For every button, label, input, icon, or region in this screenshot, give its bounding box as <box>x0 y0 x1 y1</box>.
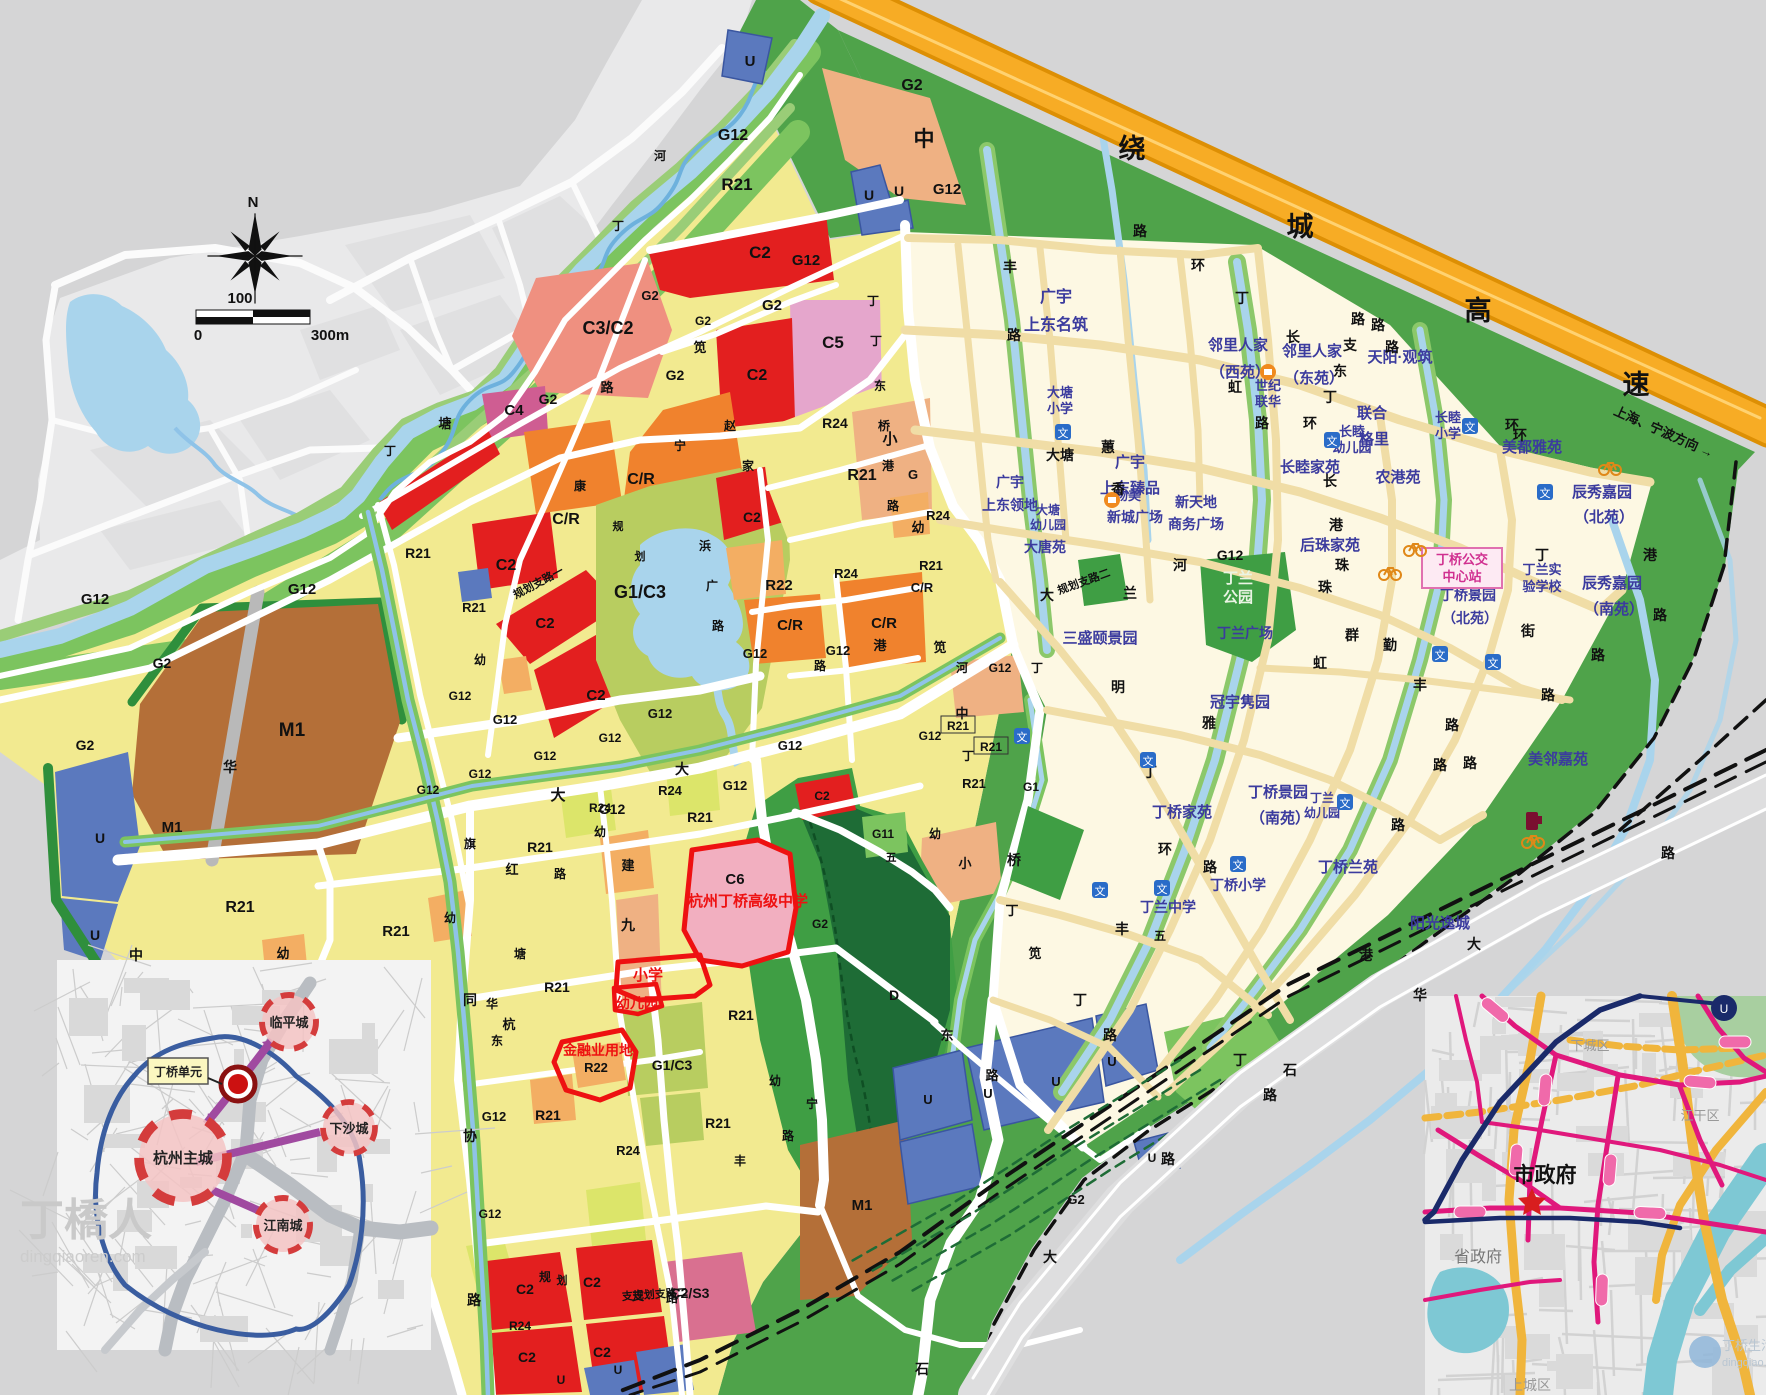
svg-text:港: 港 <box>1643 547 1658 563</box>
svg-text:验学校: 验学校 <box>1522 579 1562 594</box>
svg-text:大唐苑: 大唐苑 <box>1024 539 1066 555</box>
svg-text:小: 小 <box>958 856 971 871</box>
svg-text:金融业用地: 金融业用地 <box>562 1042 633 1058</box>
svg-text:港: 港 <box>1329 517 1344 533</box>
svg-text:G12: G12 <box>648 706 673 721</box>
svg-text:高: 高 <box>1465 295 1492 326</box>
svg-text:浜: 浜 <box>699 538 711 553</box>
svg-text:R24: R24 <box>926 508 951 523</box>
svg-text:建: 建 <box>621 858 634 873</box>
svg-text:丁: 丁 <box>1233 1052 1247 1068</box>
svg-text:丁桥景园: 丁桥景园 <box>1248 783 1308 801</box>
svg-text:文: 文 <box>1488 656 1499 670</box>
svg-text:G12: G12 <box>479 1207 502 1221</box>
svg-text:丁桥生活网: 丁桥生活网 <box>1722 1338 1766 1353</box>
svg-text:五: 五 <box>1154 929 1166 943</box>
svg-text:G12: G12 <box>718 127 748 144</box>
svg-text:G2: G2 <box>901 77 922 94</box>
svg-text:0: 0 <box>194 327 202 344</box>
svg-text:长睦: 长睦 <box>1435 410 1461 425</box>
svg-text:大: 大 <box>675 761 689 777</box>
svg-text:C/R: C/R <box>627 471 655 488</box>
svg-text:U: U <box>1148 1151 1157 1165</box>
svg-text:大: 大 <box>1040 587 1054 603</box>
svg-text:文: 文 <box>1157 882 1168 896</box>
svg-text:小学: 小学 <box>1435 426 1461 441</box>
svg-text:小: 小 <box>882 431 897 448</box>
svg-text:路: 路 <box>1661 845 1676 861</box>
svg-text:广宇: 广宇 <box>996 474 1024 490</box>
svg-text:C6: C6 <box>725 871 744 888</box>
svg-text:丰: 丰 <box>1413 677 1427 693</box>
svg-text:杭州丁桥高级中学: 杭州丁桥高级中学 <box>688 892 808 910</box>
svg-text:路: 路 <box>1103 1027 1118 1043</box>
svg-text:R21: R21 <box>980 740 1002 754</box>
svg-text:G2: G2 <box>695 314 711 328</box>
svg-text:明: 明 <box>1111 679 1125 695</box>
svg-text:G2: G2 <box>812 917 828 931</box>
svg-text:C2: C2 <box>583 1274 601 1290</box>
svg-text:G2: G2 <box>666 367 685 383</box>
svg-text:宁: 宁 <box>806 1096 818 1111</box>
svg-text:河: 河 <box>955 660 968 675</box>
svg-text:划: 划 <box>635 549 646 563</box>
svg-text:文: 文 <box>1465 420 1476 434</box>
svg-text:市政府: 市政府 <box>1514 1163 1577 1187</box>
svg-text:C3/C2: C3/C2 <box>582 318 633 338</box>
svg-text:路: 路 <box>1445 717 1460 733</box>
svg-text:C/R: C/R <box>552 511 580 528</box>
svg-text:家: 家 <box>742 458 755 473</box>
svg-text:大: 大 <box>1043 1249 1057 1265</box>
svg-text:中心站: 中心站 <box>1442 569 1481 584</box>
svg-text:G12: G12 <box>469 767 492 781</box>
svg-text:协: 协 <box>463 1128 477 1144</box>
svg-text:大: 大 <box>550 786 565 804</box>
svg-text:G12: G12 <box>723 778 748 793</box>
svg-text:路: 路 <box>1433 757 1448 773</box>
svg-text:D: D <box>889 987 899 1003</box>
svg-text:丁桥单元: 丁桥单元 <box>154 1064 202 1079</box>
svg-text:G12: G12 <box>482 1109 507 1124</box>
svg-text:C/R: C/R <box>871 615 897 632</box>
svg-text:冠宇隽园: 冠宇隽园 <box>1210 693 1270 711</box>
svg-text:联华: 联华 <box>1255 394 1281 409</box>
svg-text:路: 路 <box>1385 339 1400 355</box>
svg-text:幼: 幼 <box>594 824 606 839</box>
svg-text:丁: 丁 <box>867 294 879 308</box>
svg-text:U: U <box>1051 1074 1060 1089</box>
svg-text:R21: R21 <box>535 1107 561 1123</box>
svg-text:幼: 幼 <box>929 826 941 841</box>
svg-text:路: 路 <box>1391 817 1406 833</box>
svg-text:九: 九 <box>620 917 635 933</box>
svg-text:路: 路 <box>600 380 614 395</box>
svg-text:丁桥公交: 丁桥公交 <box>1436 552 1488 567</box>
svg-text:文: 文 <box>1058 426 1069 440</box>
svg-text:R24: R24 <box>509 1319 531 1333</box>
svg-text:丰: 丰 <box>1115 921 1129 937</box>
svg-text:丁: 丁 <box>612 219 624 233</box>
svg-text:C2: C2 <box>535 615 554 632</box>
svg-text:东: 东 <box>874 378 886 393</box>
svg-text:R22: R22 <box>584 1060 608 1075</box>
svg-text:R21: R21 <box>687 809 713 825</box>
svg-text:U: U <box>894 183 904 199</box>
svg-text:公园: 公园 <box>1223 589 1253 606</box>
svg-text:杭州主城: 杭州主城 <box>153 1149 213 1167</box>
svg-text:五: 五 <box>886 851 897 864</box>
svg-text:G12: G12 <box>743 646 768 661</box>
svg-text:东: 东 <box>491 1033 503 1048</box>
svg-text:幼: 幼 <box>474 652 486 667</box>
svg-text:文: 文 <box>1540 486 1551 500</box>
svg-text:城: 城 <box>1287 212 1314 242</box>
svg-text:R22: R22 <box>765 577 793 594</box>
svg-text:群: 群 <box>1344 627 1359 643</box>
svg-text:笕: 笕 <box>1028 946 1041 961</box>
svg-text:港: 港 <box>1359 947 1374 963</box>
svg-text:G2: G2 <box>641 288 658 303</box>
svg-text:丁兰实: 丁兰实 <box>1522 562 1561 577</box>
svg-text:G12: G12 <box>826 643 851 658</box>
svg-text:路: 路 <box>887 498 900 513</box>
svg-text:U: U <box>95 830 105 846</box>
svg-text:M1: M1 <box>279 720 306 741</box>
svg-text:勤: 勤 <box>1383 637 1397 653</box>
svg-text:港: 港 <box>882 458 895 473</box>
svg-text:大塘: 大塘 <box>1036 502 1060 517</box>
svg-text:C/R: C/R <box>911 580 934 595</box>
svg-text:C5: C5 <box>822 333 844 352</box>
svg-text:联合: 联合 <box>1357 404 1388 422</box>
svg-text:环: 环 <box>1191 257 1205 273</box>
svg-text:丁桥家苑: 丁桥家苑 <box>1152 803 1212 821</box>
svg-text:丁: 丁 <box>1031 661 1043 675</box>
svg-text:幼: 幼 <box>444 910 456 925</box>
svg-text:100: 100 <box>227 290 252 307</box>
svg-text:R21: R21 <box>947 719 969 733</box>
svg-text:G1/C3: G1/C3 <box>652 1057 693 1073</box>
svg-text:G11: G11 <box>872 827 894 841</box>
svg-text:丁桥小学: 丁桥小学 <box>1210 877 1266 893</box>
svg-text:丰: 丰 <box>734 1153 746 1168</box>
svg-text:丁: 丁 <box>1323 389 1337 405</box>
svg-text:C2: C2 <box>516 1281 534 1297</box>
svg-text:街: 街 <box>1520 623 1535 639</box>
svg-text:环: 环 <box>1303 415 1317 431</box>
svg-text:广宇: 广宇 <box>1040 287 1072 306</box>
svg-text:丁: 丁 <box>962 749 974 763</box>
svg-text:U: U <box>864 187 874 203</box>
svg-text:三盛颐景园: 三盛颐景园 <box>1062 629 1137 647</box>
svg-text:环: 环 <box>1158 841 1172 857</box>
svg-text:华: 华 <box>1413 987 1427 1003</box>
svg-text:路: 路 <box>782 1128 795 1143</box>
svg-text:G2: G2 <box>153 655 172 671</box>
svg-text:R21: R21 <box>962 776 986 791</box>
svg-text:幼: 幼 <box>276 946 289 961</box>
svg-text:文: 文 <box>1143 754 1154 768</box>
svg-text:丁: 丁 <box>1235 290 1249 306</box>
svg-text:C2: C2 <box>747 367 768 384</box>
svg-text:兰: 兰 <box>1123 585 1137 601</box>
svg-text:中: 中 <box>914 128 935 151</box>
svg-text:C2: C2 <box>593 1344 611 1360</box>
svg-text:路: 路 <box>712 618 725 633</box>
svg-text:小学: 小学 <box>633 966 663 984</box>
svg-text:R21: R21 <box>527 839 553 855</box>
svg-text:（南苑）: （南苑） <box>1250 809 1310 827</box>
svg-text:新城广场: 新城广场 <box>1107 509 1163 525</box>
svg-text:丁: 丁 <box>1073 992 1087 1008</box>
svg-text:R21: R21 <box>462 600 486 615</box>
svg-text:R24: R24 <box>834 566 859 581</box>
svg-text:环: 环 <box>1505 417 1519 433</box>
svg-text:幼儿园: 幼儿园 <box>616 995 658 1011</box>
svg-text:美邻嘉苑: 美邻嘉苑 <box>1528 750 1588 768</box>
svg-text:路: 路 <box>1351 311 1366 327</box>
svg-text:上东名筑: 上东名筑 <box>1024 315 1088 334</box>
svg-text:路: 路 <box>1263 1087 1278 1103</box>
svg-text:河: 河 <box>1173 557 1187 573</box>
svg-text:美都雅苑: 美都雅苑 <box>1502 438 1562 456</box>
svg-text:U: U <box>1107 1054 1116 1069</box>
svg-text:桥: 桥 <box>1007 852 1022 868</box>
svg-text:路: 路 <box>1133 223 1148 239</box>
svg-text:dingqiaoren.com: dingqiaoren.com <box>20 1247 146 1266</box>
svg-text:R21: R21 <box>225 899 254 916</box>
svg-text:长: 长 <box>1323 473 1338 489</box>
svg-text:R21: R21 <box>405 545 431 561</box>
svg-text:路: 路 <box>1541 687 1556 703</box>
svg-text:G2: G2 <box>539 391 558 407</box>
svg-text:路: 路 <box>985 1068 999 1083</box>
svg-text:幼儿园: 幼儿园 <box>1030 517 1066 532</box>
svg-text:C2: C2 <box>518 1349 536 1365</box>
svg-text:珠: 珠 <box>1335 557 1350 573</box>
svg-text:珠: 珠 <box>1318 579 1333 595</box>
svg-text:塘: 塘 <box>514 946 526 961</box>
svg-text:R24: R24 <box>589 801 611 815</box>
svg-text:格里: 格里 <box>1359 430 1389 448</box>
svg-text:石: 石 <box>1282 1062 1297 1078</box>
svg-text:U: U <box>923 1092 932 1107</box>
svg-text:文: 文 <box>1233 858 1244 872</box>
svg-text:丁: 丁 <box>870 334 882 348</box>
svg-text:路: 路 <box>1591 647 1606 663</box>
svg-text:C4: C4 <box>504 402 524 419</box>
svg-text:C2: C2 <box>496 557 517 574</box>
svg-text:dingqiao.cc: dingqiao.cc <box>1722 1357 1766 1369</box>
svg-text:U: U <box>1720 1002 1729 1016</box>
svg-text:M1: M1 <box>162 819 183 836</box>
svg-text:R21: R21 <box>919 558 943 573</box>
svg-text:速: 速 <box>1623 370 1650 400</box>
svg-text:R24: R24 <box>616 1143 641 1158</box>
svg-text:幼儿园: 幼儿园 <box>1304 805 1340 820</box>
svg-text:G12: G12 <box>81 591 109 608</box>
svg-text:商务广场: 商务广场 <box>1168 516 1224 532</box>
svg-text:路: 路 <box>554 866 567 881</box>
svg-text:东: 东 <box>940 1028 953 1043</box>
svg-text:G12: G12 <box>417 783 440 797</box>
svg-text:华: 华 <box>223 759 237 775</box>
svg-text:文: 文 <box>1017 730 1028 744</box>
svg-text:U: U <box>983 1086 992 1101</box>
svg-text:R21: R21 <box>544 979 570 995</box>
svg-text:下沙城: 下沙城 <box>329 1121 368 1136</box>
svg-text:300m: 300m <box>311 327 349 344</box>
svg-text:东: 东 <box>1333 363 1347 379</box>
svg-text:U: U <box>90 927 100 943</box>
svg-text:C2: C2 <box>749 243 771 262</box>
svg-text:天阳·观筑: 天阳·观筑 <box>1368 348 1433 366</box>
svg-text:丁桥兰苑: 丁桥兰苑 <box>1318 858 1378 876</box>
svg-text:R21: R21 <box>705 1115 731 1131</box>
svg-text:农港苑: 农港苑 <box>1374 468 1420 486</box>
svg-text:华: 华 <box>486 996 498 1011</box>
svg-text:桥: 桥 <box>878 418 891 433</box>
svg-text:石: 石 <box>914 1361 929 1377</box>
svg-text:N: N <box>248 194 259 211</box>
svg-text:路: 路 <box>814 658 827 673</box>
svg-text:C2: C2 <box>814 789 830 803</box>
svg-text:江南城: 江南城 <box>263 1218 302 1233</box>
svg-text:幼: 幼 <box>911 520 924 535</box>
svg-text:R24: R24 <box>658 783 683 798</box>
svg-text:路: 路 <box>467 1292 482 1308</box>
svg-text:支: 支 <box>1342 337 1358 353</box>
svg-text:规: 规 <box>613 519 624 533</box>
svg-text:下城区: 下城区 <box>1570 1038 1609 1053</box>
svg-text:路: 路 <box>1371 317 1386 333</box>
svg-text:赵: 赵 <box>723 418 737 433</box>
svg-text:G12: G12 <box>919 729 942 743</box>
svg-text:C2: C2 <box>743 509 761 525</box>
svg-text:G: G <box>908 467 918 482</box>
svg-text:丁兰中学: 丁兰中学 <box>1140 899 1196 915</box>
svg-text:丁桥景园: 丁桥景园 <box>1440 587 1496 603</box>
svg-text:G2: G2 <box>76 737 95 753</box>
svg-text:路: 路 <box>1463 755 1478 771</box>
svg-text:辰秀嘉园: 辰秀嘉园 <box>1582 574 1642 592</box>
svg-text:丁兰: 丁兰 <box>1223 569 1253 587</box>
svg-text:丁橋人: 丁橋人 <box>20 1196 152 1245</box>
svg-text:笕: 笕 <box>693 340 706 355</box>
svg-text:路: 路 <box>1653 607 1668 623</box>
svg-text:大: 大 <box>1467 936 1481 952</box>
svg-text:笕: 笕 <box>933 640 946 655</box>
svg-text:文: 文 <box>1095 884 1106 898</box>
svg-text:辰秀嘉园: 辰秀嘉园 <box>1572 483 1632 501</box>
svg-text:康: 康 <box>574 478 587 493</box>
svg-text:旗: 旗 <box>464 836 476 851</box>
svg-text:大塘: 大塘 <box>1046 447 1074 463</box>
svg-text:G12: G12 <box>288 581 316 598</box>
svg-text:文: 文 <box>1435 648 1446 662</box>
svg-text:（北苑）: （北苑） <box>1574 508 1634 526</box>
svg-text:绕: 绕 <box>1119 133 1146 164</box>
svg-text:规: 规 <box>539 1269 551 1284</box>
svg-text:G2: G2 <box>1067 1192 1084 1207</box>
svg-text:C/R: C/R <box>777 617 803 634</box>
svg-text:雅: 雅 <box>1202 715 1216 731</box>
svg-text:上东领地: 上东领地 <box>982 497 1038 513</box>
svg-text:R21: R21 <box>721 175 752 194</box>
svg-text:同: 同 <box>463 992 477 1008</box>
svg-text:蕙: 蕙 <box>1101 439 1115 455</box>
svg-text:路: 路 <box>1255 415 1270 431</box>
svg-text:U: U <box>614 1363 623 1377</box>
svg-text:虹: 虹 <box>1313 655 1327 671</box>
svg-text:邻里人家: 邻里人家 <box>1207 336 1268 354</box>
svg-text:R21: R21 <box>847 467 876 484</box>
svg-text:丰: 丰 <box>1003 259 1017 275</box>
svg-text:G12: G12 <box>792 252 820 269</box>
svg-text:宁: 宁 <box>674 438 686 453</box>
svg-text:文: 文 <box>1340 796 1351 810</box>
svg-text:中: 中 <box>129 947 143 963</box>
svg-text:杭: 杭 <box>502 1017 515 1032</box>
svg-text:路: 路 <box>1161 1151 1176 1167</box>
svg-text:U: U <box>557 1373 566 1387</box>
svg-text:丁: 丁 <box>384 444 396 458</box>
svg-text:新天地: 新天地 <box>1175 494 1217 510</box>
svg-text:河: 河 <box>653 148 666 163</box>
svg-text:M1: M1 <box>852 1197 873 1214</box>
svg-text:G12: G12 <box>599 731 622 745</box>
svg-text:C2: C2 <box>586 687 605 704</box>
svg-text:丁: 丁 <box>1535 547 1549 563</box>
svg-text:文: 文 <box>1327 434 1338 448</box>
svg-text:G12: G12 <box>989 661 1012 675</box>
svg-text:幼: 幼 <box>769 1073 781 1088</box>
svg-text:G12: G12 <box>1217 547 1244 563</box>
svg-text:丁兰广场: 丁兰广场 <box>1217 625 1273 641</box>
svg-text:G12: G12 <box>778 738 803 753</box>
svg-text:路: 路 <box>1203 859 1218 875</box>
svg-text:长: 长 <box>1286 329 1301 345</box>
svg-text:G1: G1 <box>1023 780 1039 794</box>
svg-text:R21: R21 <box>382 923 410 940</box>
svg-text:后珠家苑: 后珠家苑 <box>1300 536 1360 554</box>
svg-text:丁兰: 丁兰 <box>1310 790 1334 805</box>
svg-text:路: 路 <box>1007 327 1022 343</box>
svg-text:R21: R21 <box>728 1007 754 1023</box>
svg-text:虹: 虹 <box>1228 379 1242 395</box>
svg-text:小学: 小学 <box>1047 401 1073 416</box>
svg-text:广宇: 广宇 <box>1115 453 1145 471</box>
svg-text:广: 广 <box>706 578 718 593</box>
svg-text:上城区: 上城区 <box>1509 1377 1551 1393</box>
svg-text:港: 港 <box>873 638 887 653</box>
svg-text:塘: 塘 <box>438 416 451 431</box>
svg-text:G1/C3: G1/C3 <box>614 582 666 602</box>
svg-text:世纪: 世纪 <box>1255 378 1281 393</box>
svg-text:江干区: 江干区 <box>1680 1108 1719 1123</box>
svg-text:丁: 丁 <box>1005 903 1018 918</box>
svg-text:划: 划 <box>557 1273 568 1287</box>
svg-text:G12: G12 <box>933 181 961 198</box>
svg-text:阳光逸城: 阳光逸城 <box>1410 914 1470 932</box>
svg-text:U: U <box>745 53 756 70</box>
svg-text:G12: G12 <box>534 749 557 763</box>
svg-text:红: 红 <box>505 862 518 877</box>
svg-text:G2: G2 <box>762 297 782 314</box>
svg-text:G12: G12 <box>449 689 472 703</box>
svg-text:R24: R24 <box>822 415 848 431</box>
